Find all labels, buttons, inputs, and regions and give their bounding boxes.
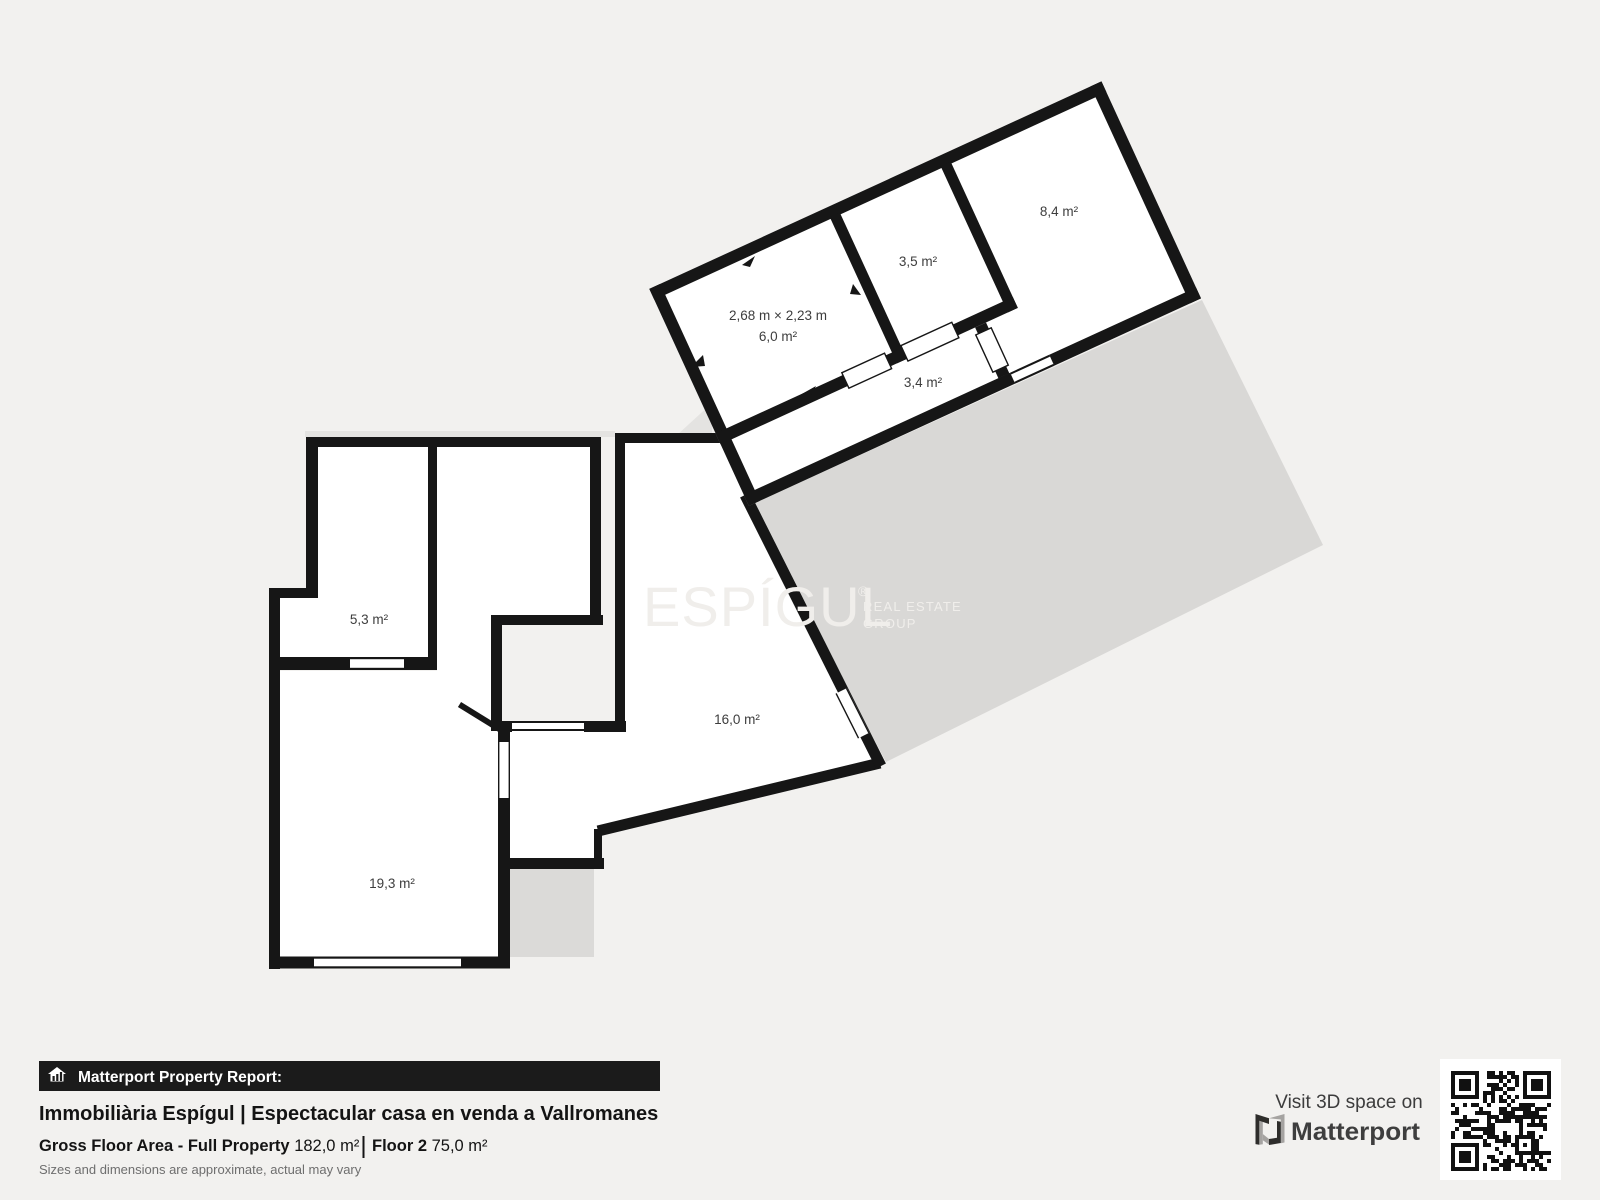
svg-text:8,4 m²: 8,4 m² <box>1040 204 1079 219</box>
svg-text:6,0 m²: 6,0 m² <box>759 329 798 344</box>
svg-text:Gross Floor Area - Full Proper: Gross Floor Area - Full Property 182,0 m… <box>39 1137 360 1155</box>
svg-text:Floor 2 75,0 m²: Floor 2 75,0 m² <box>372 1137 488 1155</box>
svg-text:Sizes and dimensions are appro: Sizes and dimensions are approximate, ac… <box>39 1162 362 1177</box>
svg-text:Visit 3D space on: Visit 3D space on <box>1275 1092 1423 1113</box>
svg-text:®: ® <box>858 583 869 599</box>
svg-text:Matterport Property Report:: Matterport Property Report: <box>78 1069 282 1086</box>
svg-text:Matterport: Matterport <box>1291 1118 1421 1146</box>
svg-text:Immobiliària Espígul | Especta: Immobiliària Espígul | Espectacular casa… <box>39 1103 658 1125</box>
svg-text:5,3 m²: 5,3 m² <box>350 612 389 627</box>
svg-text:3,5 m²: 3,5 m² <box>899 254 938 269</box>
svg-text:19,3 m²: 19,3 m² <box>369 876 415 891</box>
svg-text:2,68 m × 2,23 m: 2,68 m × 2,23 m <box>729 308 827 323</box>
svg-text:3,4 m²: 3,4 m² <box>904 375 943 390</box>
svg-text:ESPÍGUL: ESPÍGUL <box>643 575 893 638</box>
svg-text:16,0 m²: 16,0 m² <box>714 712 760 727</box>
svg-text:GROUP: GROUP <box>863 616 917 631</box>
svg-text:REAL ESTATE: REAL ESTATE <box>863 599 962 614</box>
